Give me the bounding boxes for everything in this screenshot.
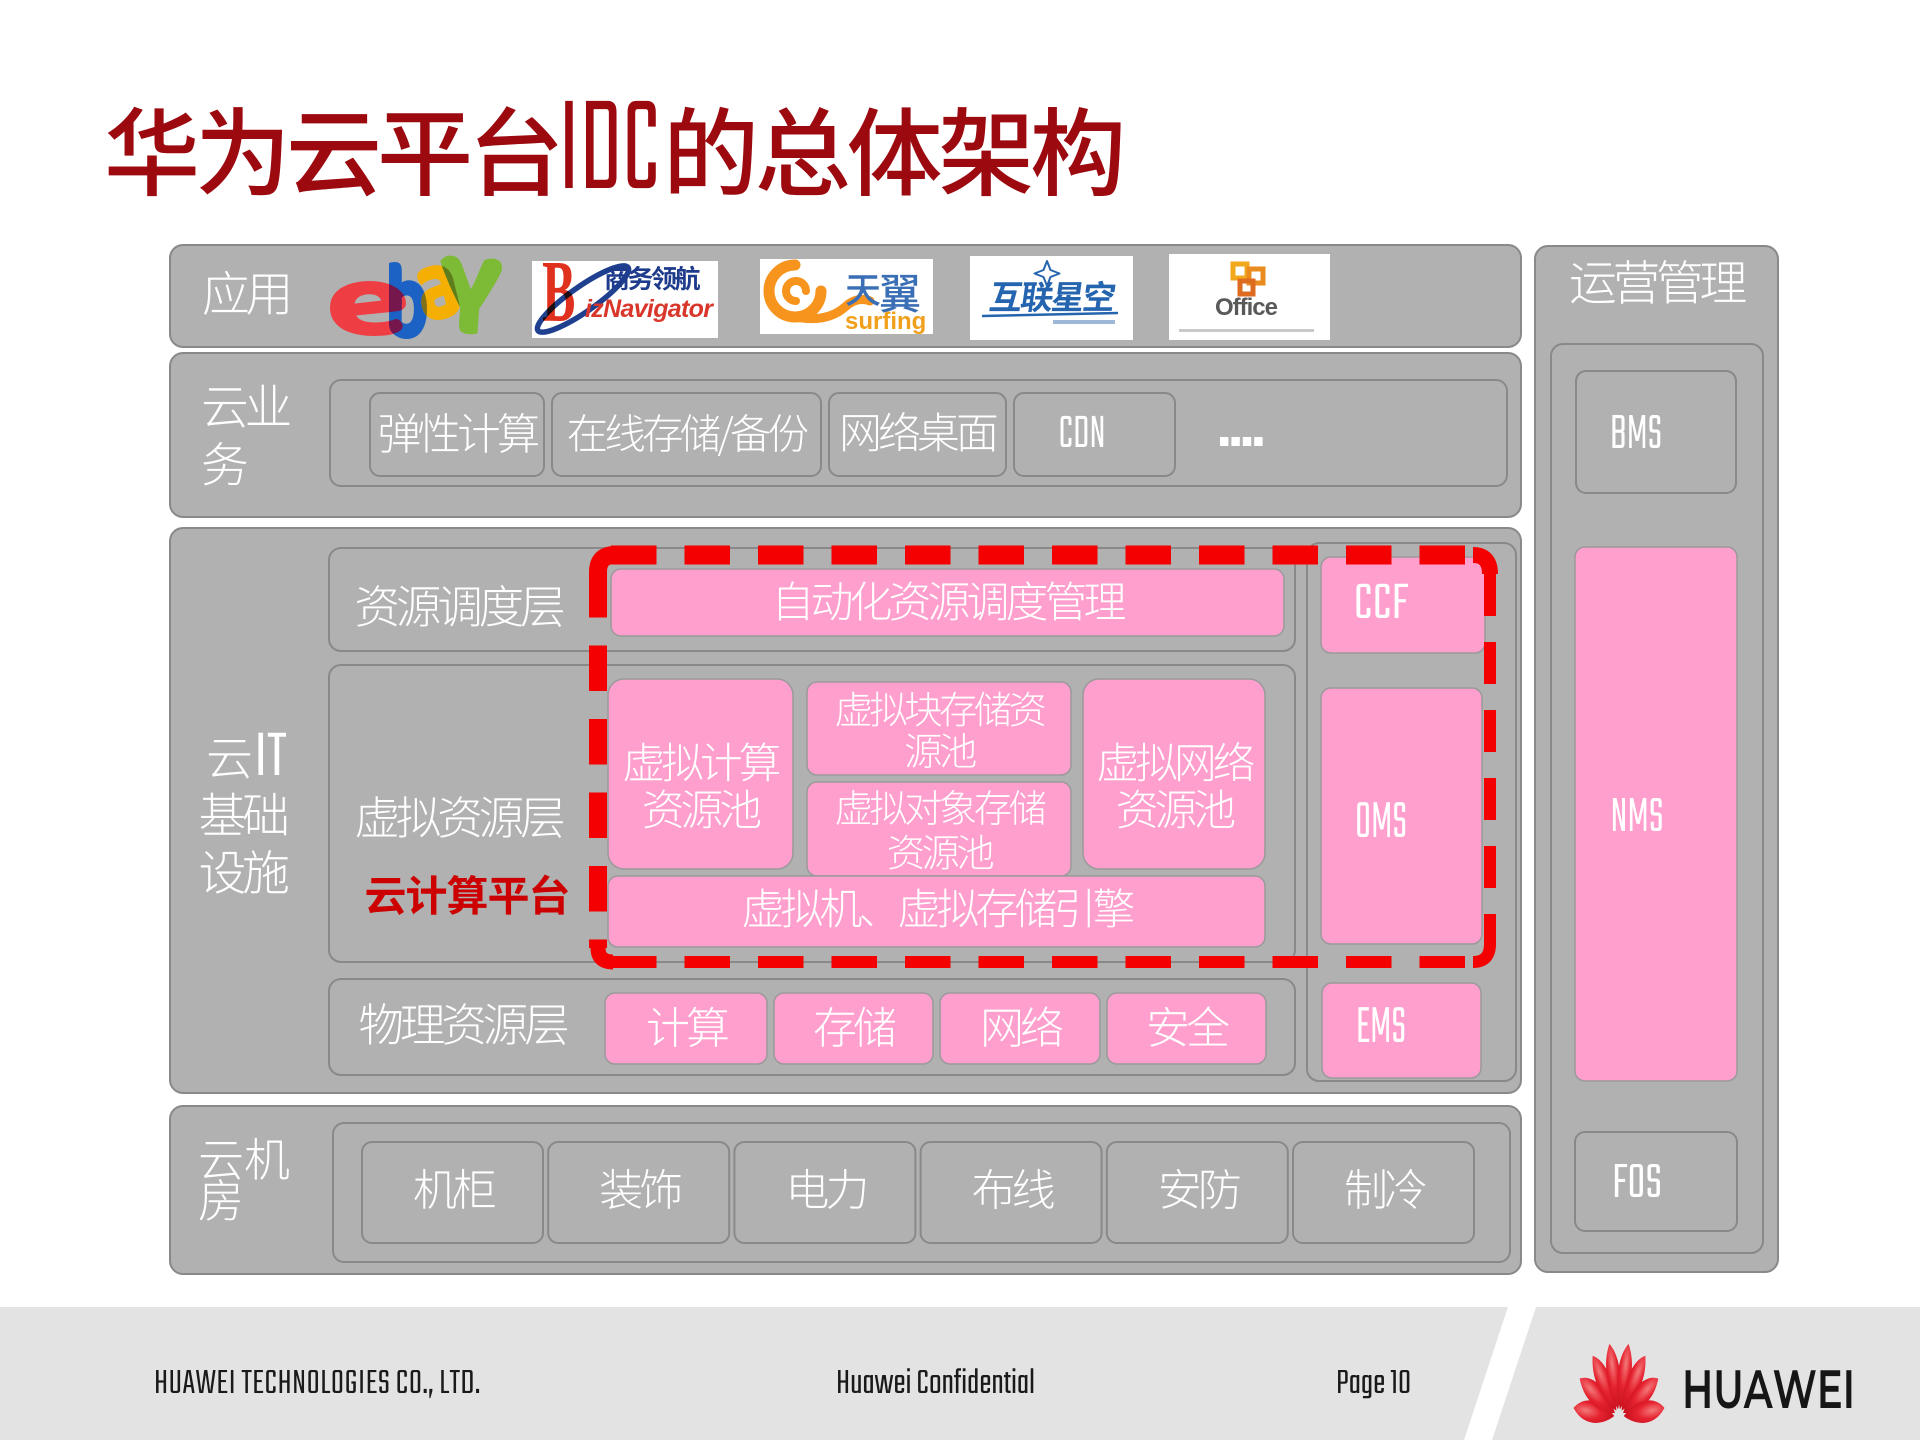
svg-text:izNavigator: izNavigator [585,295,714,323]
svg-text:Office: Office [1215,294,1278,321]
svg-text:surfing: surfing [845,308,926,335]
